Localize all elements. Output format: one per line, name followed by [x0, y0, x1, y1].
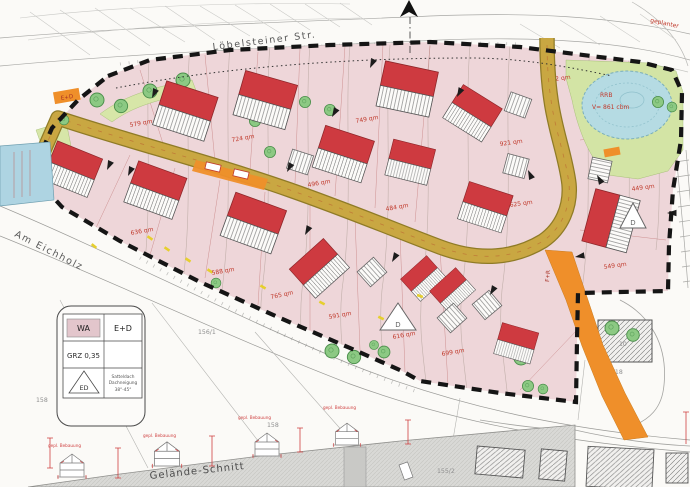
- parcel-number: 158: [267, 422, 279, 429]
- house-number: 10: [619, 341, 627, 348]
- legend-roof-desc: 38°-45°: [115, 387, 132, 393]
- legend-use: WA: [77, 324, 90, 333]
- roof-triangle-label: D: [395, 321, 400, 329]
- planned-note: geplanter: [650, 17, 680, 30]
- elevation-caption: gepl. Bebauung: [323, 405, 356, 410]
- basin-volume: V= 861 cbm: [592, 104, 630, 111]
- site-plan-page: Gelände-Schnitt gepl. Bebauung gepl. Beb…: [0, 0, 690, 487]
- legend-grz: GRZ 0,35: [67, 352, 100, 360]
- legend-box: WA E+D GRZ 0,35 ED Satteldach Dachneigun…: [57, 306, 145, 426]
- parcel-number: 158: [36, 397, 48, 404]
- roof-triangle-label: D: [630, 219, 635, 227]
- legend-storeys: E+D: [114, 324, 132, 333]
- parcel-number: 156/1: [198, 329, 216, 336]
- legend-roof-code: ED: [79, 384, 88, 392]
- site-plan-map: Gelände-Schnitt gepl. Bebauung gepl. Beb…: [0, 0, 690, 487]
- legend-roof-desc: Satteldach: [111, 374, 134, 380]
- elevation-caption: gepl. Bebauung: [143, 433, 176, 438]
- path-label: F+R: [545, 270, 552, 282]
- parcel-number: 155/2: [437, 468, 455, 475]
- legend-roof-desc: Dachneigung: [109, 380, 138, 386]
- elevation-caption: gepl. Bebauung: [48, 443, 81, 448]
- elevation-caption: gepl. Bebauung: [238, 415, 271, 420]
- street-label-left: Am Eichholz: [13, 229, 85, 273]
- utility-area: [0, 142, 54, 206]
- basin-code: RRB: [600, 92, 612, 99]
